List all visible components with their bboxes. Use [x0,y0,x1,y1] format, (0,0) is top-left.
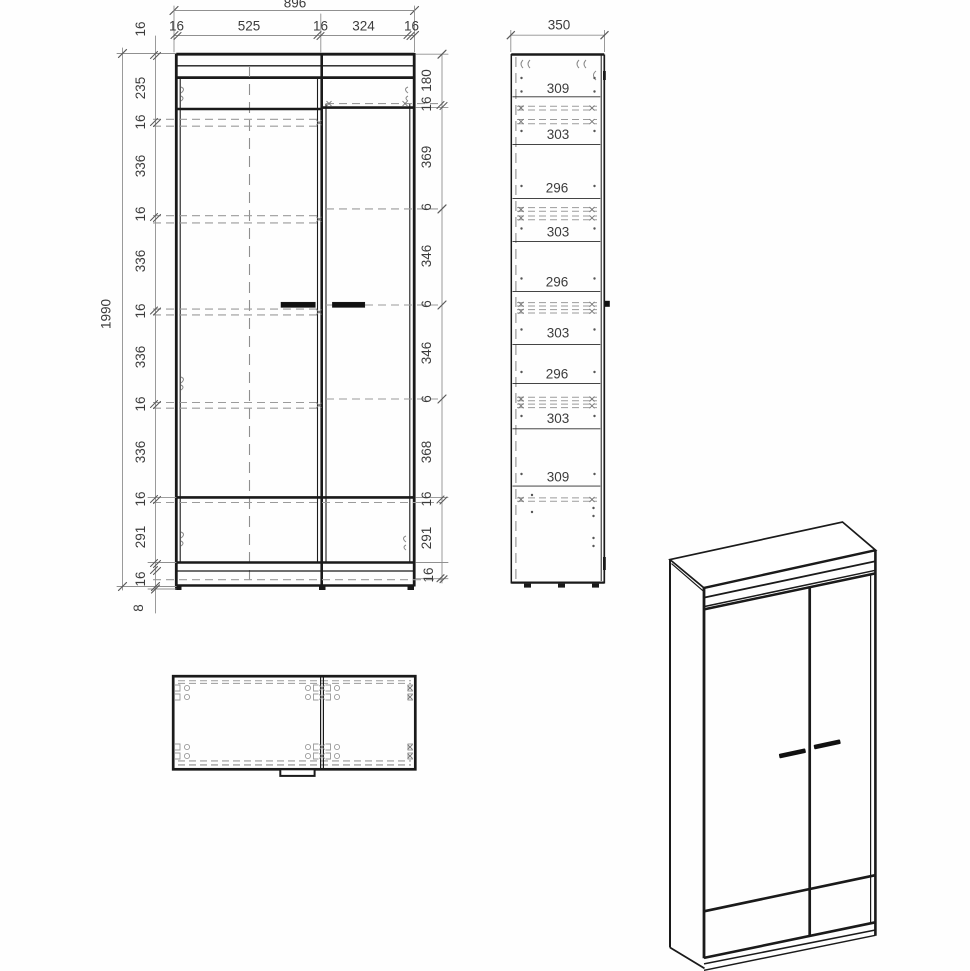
svg-text:16: 16 [313,19,328,34]
svg-text:525: 525 [238,19,261,34]
svg-text:336: 336 [133,441,148,464]
svg-text:309: 309 [547,470,570,485]
svg-text:16: 16 [404,19,419,34]
svg-text:336: 336 [133,155,148,178]
svg-text:336: 336 [133,346,148,369]
svg-text:336: 336 [133,250,148,273]
svg-text:16: 16 [133,571,148,586]
svg-text:346: 346 [419,245,434,268]
svg-text:16: 16 [133,206,148,221]
svg-text:309: 309 [547,81,570,96]
svg-text:296: 296 [546,181,569,196]
svg-text:16: 16 [419,96,434,111]
svg-text:368: 368 [419,441,434,464]
svg-text:324: 324 [352,19,375,34]
svg-text:180: 180 [419,69,434,92]
svg-text:16: 16 [133,21,148,36]
svg-text:16: 16 [419,491,434,506]
svg-text:6: 6 [419,395,434,403]
svg-text:369: 369 [419,146,434,169]
svg-text:346: 346 [419,342,434,365]
svg-text:350: 350 [548,18,571,33]
svg-text:303: 303 [547,225,570,240]
svg-text:6: 6 [419,203,434,211]
svg-text:16: 16 [133,114,148,129]
svg-text:16: 16 [133,396,148,411]
svg-text:296: 296 [546,367,569,382]
svg-text:896: 896 [284,0,307,11]
svg-text:16: 16 [133,303,148,318]
svg-text:16: 16 [133,491,148,506]
svg-text:16: 16 [169,19,184,34]
svg-text:1990: 1990 [99,299,114,329]
svg-text:296: 296 [546,275,569,290]
svg-text:16: 16 [421,567,436,582]
svg-text:8: 8 [131,604,146,612]
svg-text:303: 303 [547,411,570,426]
svg-text:6: 6 [419,300,434,308]
svg-text:303: 303 [547,127,570,142]
svg-text:291: 291 [419,527,434,550]
svg-text:291: 291 [133,526,148,549]
svg-text:235: 235 [133,77,148,100]
svg-text:303: 303 [547,326,570,341]
